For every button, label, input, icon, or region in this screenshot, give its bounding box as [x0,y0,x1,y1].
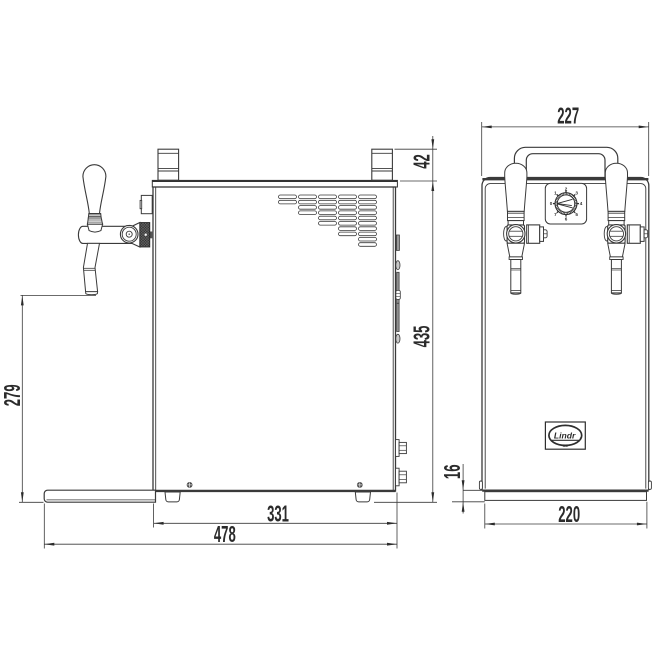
svg-text:42: 42 [409,154,435,169]
svg-text:435: 435 [409,326,435,348]
svg-text:4: 4 [580,201,583,206]
svg-text:279: 279 [0,384,25,406]
svg-text:6: 6 [565,216,568,221]
svg-text:478: 478 [214,521,236,547]
svg-text:331: 331 [267,501,289,527]
svg-text:7: 7 [554,212,557,217]
svg-text:CE: CE [563,443,569,448]
svg-text:0: 0 [550,201,553,206]
svg-text:3: 3 [575,191,578,196]
svg-text:5: 5 [575,212,578,217]
svg-text:1: 1 [554,191,557,196]
svg-text:227: 227 [557,103,579,129]
svg-text:2: 2 [565,186,568,191]
svg-text:220: 220 [558,501,580,527]
svg-text:16: 16 [439,465,465,480]
svg-text:Lindr: Lindr [554,431,576,441]
